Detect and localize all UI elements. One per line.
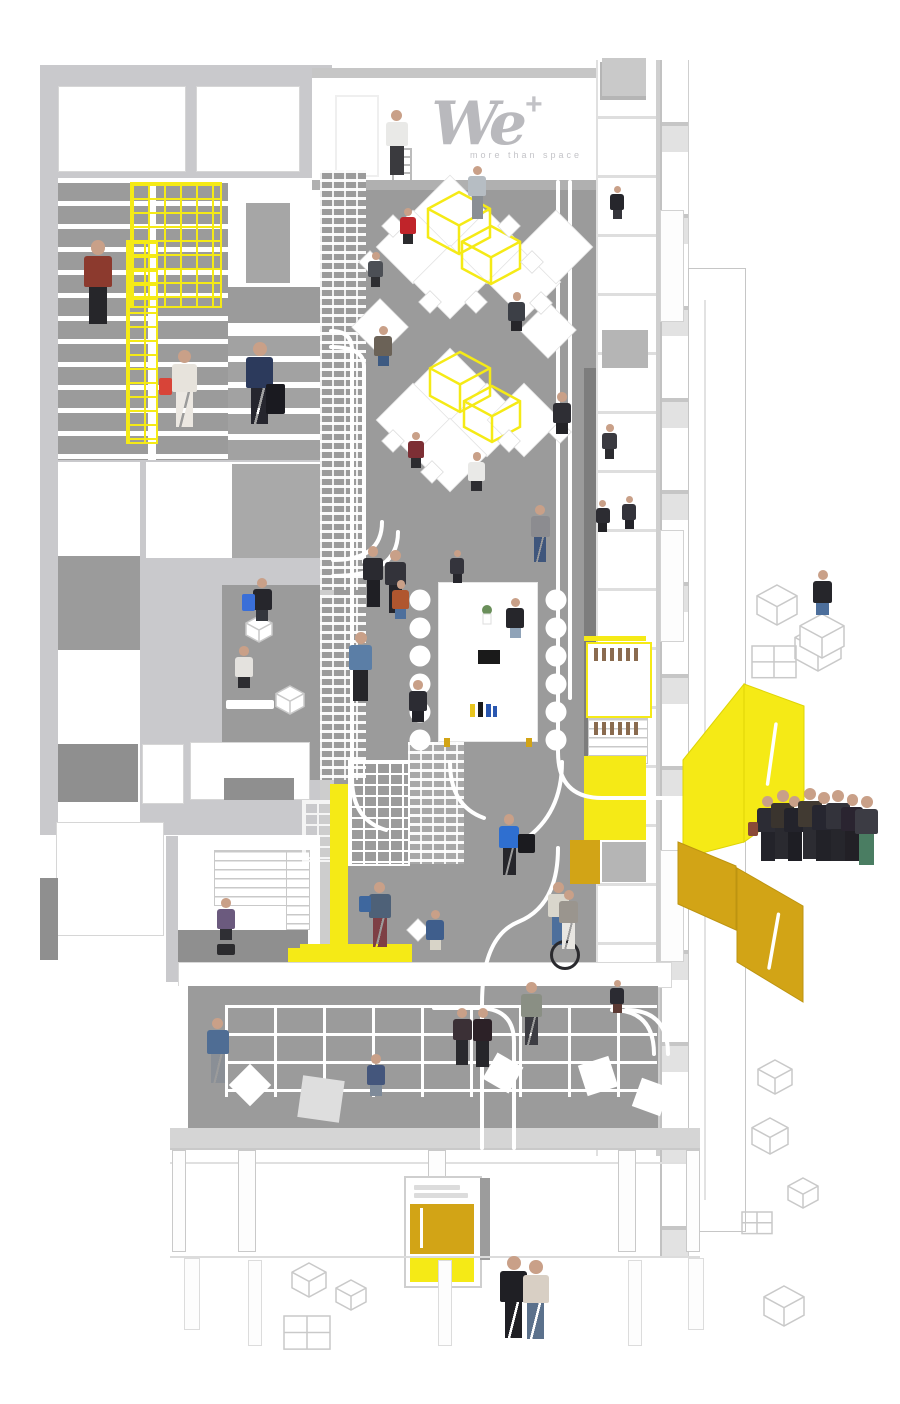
figure-torso bbox=[368, 261, 383, 278]
figure-booth-sitter-top bbox=[608, 186, 626, 223]
figure-legs bbox=[370, 1085, 382, 1096]
figure-corridor-walking-woman bbox=[556, 890, 581, 950]
figure-head bbox=[526, 982, 537, 993]
figure-head bbox=[454, 550, 461, 557]
figure-legs bbox=[471, 481, 482, 491]
figure-polo-sitter bbox=[424, 910, 447, 956]
figure-steps-sitter bbox=[250, 578, 274, 627]
figure-legs bbox=[503, 848, 516, 875]
figure-handshake-man-2 bbox=[470, 1008, 495, 1068]
figure-traveler-with-luggage bbox=[242, 342, 277, 426]
figure-lounge-walker bbox=[204, 1018, 232, 1084]
figure-head bbox=[412, 432, 420, 440]
figure-legs bbox=[625, 520, 634, 529]
figure-legs bbox=[527, 1303, 544, 1338]
figure-legs bbox=[613, 210, 622, 219]
figure-torso bbox=[207, 1030, 229, 1054]
figure-head bbox=[239, 646, 249, 656]
figure-torso bbox=[386, 122, 408, 146]
figure-torso bbox=[400, 217, 416, 234]
figure-head bbox=[626, 496, 633, 503]
figure-legs bbox=[816, 603, 829, 615]
figure-head bbox=[257, 578, 267, 588]
figure-head bbox=[404, 208, 412, 216]
figure-couple-woman-floral bbox=[519, 1260, 553, 1340]
figure-head bbox=[355, 632, 367, 644]
figure-logo-painter bbox=[383, 110, 411, 176]
figure-torso bbox=[523, 1275, 549, 1304]
figure-red-bag-woman bbox=[168, 350, 201, 428]
figure-cap-walker bbox=[528, 505, 552, 563]
figure-legs bbox=[562, 923, 575, 949]
figure-head bbox=[390, 550, 401, 561]
figure-phone-woman bbox=[232, 646, 256, 694]
figure-torso bbox=[559, 901, 579, 923]
figure-head bbox=[818, 570, 828, 580]
figure-head bbox=[91, 240, 106, 255]
figure-torso bbox=[602, 433, 617, 450]
figure-head bbox=[535, 505, 545, 515]
figure-head bbox=[513, 292, 522, 301]
figure-torso bbox=[468, 462, 485, 481]
figure-legs bbox=[556, 423, 568, 434]
figure-torso bbox=[369, 894, 391, 918]
figure-legs bbox=[598, 523, 607, 531]
figure-shelf-leaner bbox=[346, 632, 375, 702]
figure-head bbox=[372, 252, 380, 260]
figure-meeting-woman bbox=[594, 500, 612, 536]
figure-legs bbox=[613, 1004, 622, 1013]
figure-torso bbox=[246, 357, 274, 387]
figure-legs bbox=[238, 677, 250, 688]
figure-head bbox=[511, 598, 520, 607]
figure-legs bbox=[525, 1017, 538, 1045]
figure-torso bbox=[367, 1065, 385, 1085]
figure-lounge-sitting-woman bbox=[364, 1054, 388, 1102]
figure-head bbox=[371, 1054, 381, 1064]
figure-head bbox=[391, 110, 402, 121]
figure-legs bbox=[89, 287, 107, 325]
figure-legs bbox=[534, 537, 546, 563]
figure-standing-desk-woman bbox=[466, 166, 489, 220]
figure-torso bbox=[521, 994, 542, 1017]
figure-torso bbox=[408, 441, 424, 458]
figure-meeting-man bbox=[620, 496, 638, 533]
figure-legs bbox=[476, 1041, 489, 1067]
figure-coffee-break-man bbox=[600, 424, 619, 463]
figure-legs bbox=[605, 449, 615, 458]
figure-head bbox=[374, 882, 385, 893]
figure-legs bbox=[211, 1054, 225, 1083]
figure-backpack-walker bbox=[366, 882, 394, 948]
figure-torso bbox=[553, 403, 571, 423]
figure-legs bbox=[453, 574, 462, 583]
figure-desk-woman-right bbox=[506, 292, 528, 336]
figure-crowd-8 bbox=[852, 796, 881, 866]
figure-accessory bbox=[518, 834, 535, 853]
figure-torso bbox=[855, 809, 878, 834]
figure-torso bbox=[453, 1019, 472, 1040]
figure-head bbox=[178, 350, 191, 363]
figure-hoodie-carrier bbox=[496, 814, 522, 876]
figure-torso bbox=[253, 589, 272, 610]
figure-legs bbox=[412, 711, 424, 722]
figure-head bbox=[478, 1008, 488, 1018]
figure-torso bbox=[622, 504, 636, 520]
figure-booth-sitter-bottom bbox=[608, 980, 626, 1017]
figure-white-shirt-worker bbox=[466, 452, 488, 496]
figure-torso bbox=[506, 608, 524, 627]
figure-torso bbox=[813, 581, 833, 603]
figure-head bbox=[606, 424, 614, 432]
figure-torso bbox=[450, 558, 464, 574]
figure-head bbox=[614, 186, 621, 193]
figure-torso bbox=[610, 194, 624, 210]
figure-legs bbox=[367, 580, 380, 607]
figure-legs bbox=[511, 321, 522, 331]
figure-torso bbox=[374, 336, 392, 355]
figure-legs bbox=[220, 929, 232, 940]
figure-head bbox=[473, 166, 482, 175]
figure-torso bbox=[235, 657, 253, 677]
figure-head bbox=[212, 1018, 223, 1029]
figure-legs bbox=[176, 392, 192, 426]
figure-head bbox=[368, 546, 379, 557]
figure-legs bbox=[859, 834, 874, 865]
figure-head bbox=[614, 980, 621, 987]
figure-table-head-man bbox=[448, 550, 466, 587]
figure-legs bbox=[373, 918, 387, 947]
figure-head bbox=[557, 392, 567, 402]
figure-torso bbox=[508, 302, 525, 321]
figure-accessory bbox=[359, 896, 371, 912]
figure-head bbox=[599, 500, 606, 507]
figure-head bbox=[397, 580, 406, 589]
figure-tablet-worker bbox=[366, 252, 385, 291]
figure-legs bbox=[395, 609, 406, 619]
figure-torso bbox=[468, 176, 486, 195]
axonometric-illustration: We+ more than space bbox=[0, 0, 900, 1404]
figure-office-chair-man bbox=[214, 898, 238, 946]
figure-legs bbox=[353, 670, 368, 701]
figure-legs bbox=[472, 196, 483, 220]
figure-plaid-shirt-man bbox=[80, 240, 116, 326]
figure-head bbox=[221, 898, 231, 908]
figure-legs bbox=[456, 1040, 468, 1066]
figure-torso bbox=[531, 516, 550, 537]
figure-legs bbox=[403, 234, 413, 244]
figure-legs bbox=[411, 458, 421, 468]
figure-desk-woman-2 bbox=[406, 432, 426, 473]
figure-head bbox=[253, 342, 267, 356]
figure-suited-worker-right bbox=[550, 392, 574, 440]
figure-head bbox=[861, 796, 873, 808]
figure-torso bbox=[84, 256, 112, 287]
figure-torso bbox=[172, 364, 198, 392]
figure-legs bbox=[371, 277, 381, 286]
people-layer bbox=[0, 0, 900, 1404]
figure-head bbox=[529, 1260, 543, 1274]
figure-torso bbox=[217, 909, 235, 929]
figure-torso bbox=[392, 590, 409, 609]
figure-cardigan-walker bbox=[518, 982, 545, 1046]
figure-head bbox=[379, 326, 388, 335]
figure-torso bbox=[409, 691, 427, 711]
figure-red-shirt-worker bbox=[398, 208, 418, 249]
figure-legs bbox=[430, 940, 441, 951]
figure-torso bbox=[499, 826, 519, 848]
figure-legs bbox=[256, 610, 268, 622]
figure-accessory bbox=[242, 594, 255, 611]
figure-cube-sitter bbox=[810, 570, 835, 621]
figure-accessory bbox=[748, 822, 758, 836]
figure-accessory bbox=[159, 378, 172, 395]
figure-dark-suit-woman bbox=[406, 680, 430, 728]
figure-torso bbox=[610, 988, 624, 1004]
figure-torso bbox=[426, 920, 444, 939]
figure-torso bbox=[596, 508, 610, 523]
figure-orange-top-woman bbox=[390, 580, 412, 624]
figure-laptop-worker bbox=[372, 326, 395, 372]
figure-legs bbox=[390, 146, 404, 175]
figure-accessory bbox=[266, 384, 285, 414]
figure-head bbox=[504, 814, 515, 825]
figure-legs bbox=[510, 628, 521, 639]
figure-head bbox=[431, 910, 440, 919]
figure-head bbox=[457, 1008, 467, 1018]
figure-head bbox=[413, 680, 423, 690]
figure-accessory bbox=[217, 944, 235, 955]
figure-torso bbox=[473, 1019, 493, 1041]
figure-head bbox=[473, 452, 482, 461]
figure-legs bbox=[378, 356, 389, 367]
figure-torso bbox=[363, 558, 383, 580]
figure-torso bbox=[349, 645, 372, 670]
figure-head bbox=[564, 890, 574, 900]
figure-black-top-woman bbox=[504, 598, 527, 644]
